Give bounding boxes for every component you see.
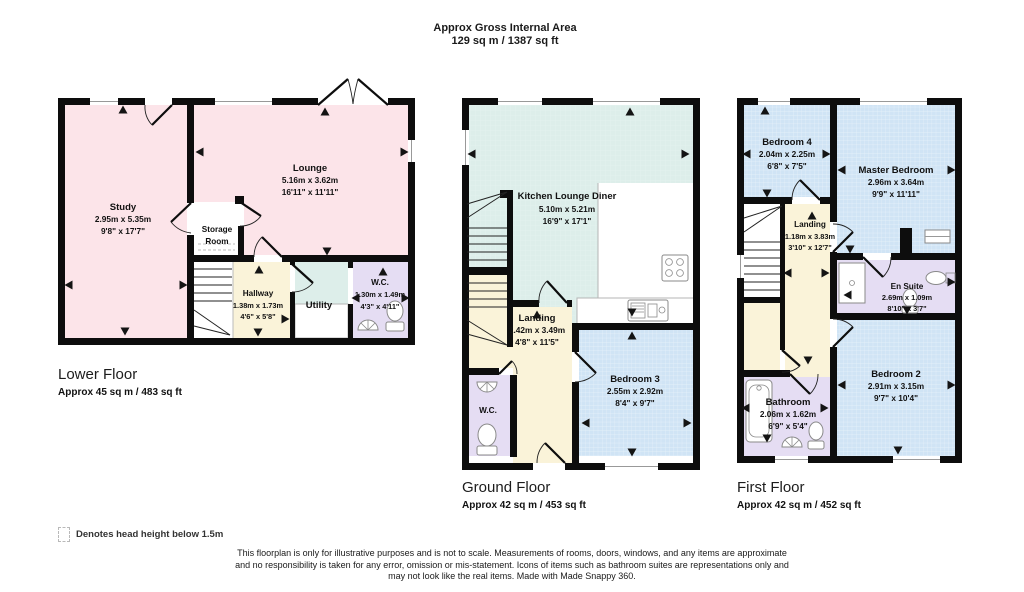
ensuite-imperial: 8'10" x 3'7" xyxy=(887,304,927,313)
study-label: Study xyxy=(110,202,137,213)
hob-icon xyxy=(662,255,688,281)
first-floor-area: Approx 42 sq m / 452 sq ft xyxy=(737,500,861,511)
lounge-metric: 5.16m x 3.62m xyxy=(282,175,338,185)
bathroom-toilet-icon xyxy=(808,422,824,449)
bedroom4-imperial: 6'8" x 7'5" xyxy=(767,161,807,171)
bedroom4-label: Bedroom 4 xyxy=(762,137,812,148)
ground-floor-caption: Ground Floor Approx 42 sq m / 453 sq ft xyxy=(462,479,586,511)
legend: Denotes head height below 1.5m xyxy=(58,527,223,542)
gross-area-value: 129 sq m / 1387 sq ft xyxy=(0,35,1010,48)
bathroom-label: Bathroom xyxy=(766,397,811,408)
ground-landing-metric: 1.42m x 3.49m xyxy=(509,325,565,335)
ground-room-fills xyxy=(467,105,693,463)
shower-icon xyxy=(839,263,865,303)
first-stairs xyxy=(744,206,782,290)
lounge-label: Lounge xyxy=(293,163,327,174)
ground-floor-title: Ground Floor xyxy=(462,479,586,496)
kitchen-imperial: 16'9" x 17'1" xyxy=(543,216,592,226)
floorplan-page: Approx Gross Internal Area 129 sq m / 13… xyxy=(0,0,1024,592)
lounge-imperial: 16'11" x 11'11" xyxy=(282,187,339,197)
bedroom3-metric: 2.55m x 2.92m xyxy=(607,386,663,396)
bedroom2-imperial: 9'7" x 10'4" xyxy=(874,393,918,403)
disclaimer: This floorplan is only for illustrative … xyxy=(0,548,1024,583)
hallway-label: Hallway xyxy=(243,289,274,298)
lower-floor-title: Lower Floor xyxy=(58,366,182,383)
gross-area-title: Approx Gross Internal Area xyxy=(0,22,1010,35)
bathroom-metric: 2.06m x 1.62m xyxy=(760,409,816,419)
utility-label: Utility xyxy=(306,300,333,311)
first-floor-title: First Floor xyxy=(737,479,861,496)
master-metric: 2.96m x 3.64m xyxy=(868,177,924,187)
bathroom-imperial: 6'9" x 5'4" xyxy=(768,421,808,431)
page-title: Approx Gross Internal Area 129 sq m / 13… xyxy=(0,22,1010,48)
ground-landing-imperial: 4'8" x 11'5" xyxy=(515,337,559,347)
wc-metric: 1.30m x 1.49m xyxy=(355,290,406,299)
head-height-legend-icon xyxy=(58,527,70,542)
kitchen-label: Kitchen Lounge Diner xyxy=(518,191,617,202)
storage-label-2: Room xyxy=(205,237,228,246)
wc-label: W.C. xyxy=(371,278,389,287)
kitchen-metric: 5.10m x 5.21m xyxy=(539,204,595,214)
master-imperial: 9'9" x 11'11" xyxy=(872,189,920,199)
storage-label-1: Storage xyxy=(202,225,233,234)
first-landing-metric: 1.18m x 3.83m xyxy=(785,232,836,241)
ensuite-metric: 2.69m x 1.09m xyxy=(882,293,933,302)
bedroom2-metric: 2.91m x 3.15m xyxy=(868,381,924,391)
bedroom3-imperial: 8'4" x 9'7" xyxy=(615,398,655,408)
first-floor-plan: Bedroom 4 2.04m x 2.25m 6'8" x 7'5" Mast… xyxy=(730,90,970,475)
disclaimer-line-3: may not look like the real items. Made w… xyxy=(0,571,1024,583)
bedroom3-label: Bedroom 3 xyxy=(610,374,660,385)
lower-floor-area: Approx 45 sq m / 483 sq ft xyxy=(58,387,182,398)
study-metric: 2.95m x 5.35m xyxy=(95,214,151,224)
lower-floor-plan: Study 2.95m x 5.35m 9'8" x 17'7" Lounge … xyxy=(55,64,420,354)
master-label: Master Bedroom xyxy=(859,165,934,176)
first-landing-label: Landing xyxy=(794,220,826,229)
ground-floor-area: Approx 42 sq m / 453 sq ft xyxy=(462,500,586,511)
first-landing-imperial: 3'10" x 12'7" xyxy=(788,243,832,252)
wc-imperial: 4'3" x 4'11" xyxy=(361,302,400,311)
bedroom2-label: Bedroom 2 xyxy=(871,369,921,380)
ground-floor-plan: Kitchen Lounge Diner 5.10m x 5.21m 16'9"… xyxy=(455,90,705,475)
ensuite-label: En Suite xyxy=(891,282,924,291)
ground-wc-label: W.C. xyxy=(479,406,497,415)
lower-floor-caption: Lower Floor Approx 45 sq m / 483 sq ft xyxy=(58,366,182,398)
legend-text: Denotes head height below 1.5m xyxy=(76,529,223,540)
hallway-imperial: 4'6" x 5'8" xyxy=(240,312,276,321)
study-imperial: 9'8" x 17'7" xyxy=(101,226,145,236)
bedroom4-metric: 2.04m x 2.25m xyxy=(759,149,815,159)
disclaimer-line-1: This floorplan is only for illustrative … xyxy=(0,548,1024,560)
disclaimer-line-2: and no responsibility is taken for any e… xyxy=(0,560,1024,572)
hallway-metric: 1.38m x 1.73m xyxy=(233,301,284,310)
first-floor-caption: First Floor Approx 42 sq m / 452 sq ft xyxy=(737,479,861,511)
ground-landing-label: Landing xyxy=(519,313,556,324)
